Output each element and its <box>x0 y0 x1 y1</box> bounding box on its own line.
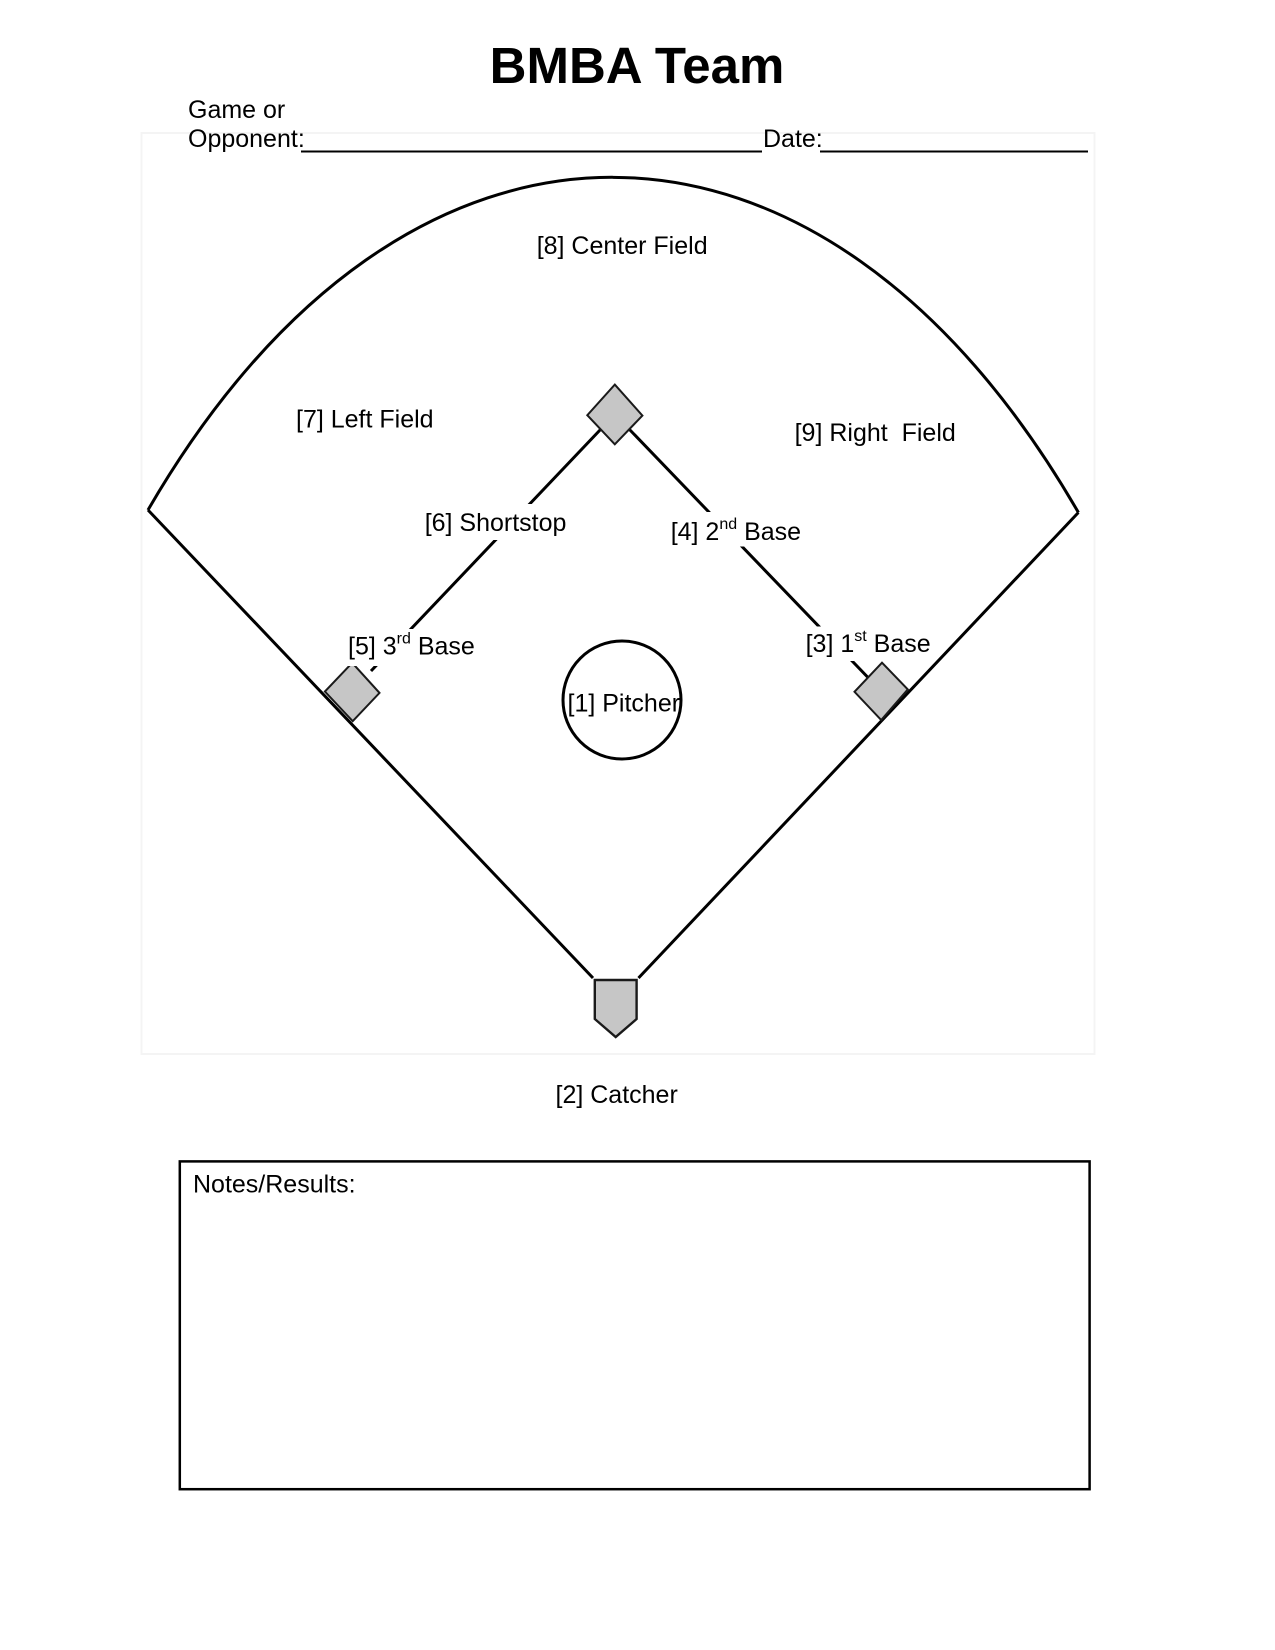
svg-text:Game or: Game or <box>188 96 285 124</box>
svg-text:[8] Center Field: [8] Center Field <box>537 232 708 260</box>
svg-text:[3] 1st Base: [3] 1st Base <box>806 628 931 658</box>
svg-text:[9] Right Field: [9] Right Field <box>795 419 956 447</box>
svg-text:Notes/Results:: Notes/Results: <box>193 1171 356 1199</box>
svg-text:BMBA Team: BMBA Team <box>490 37 785 94</box>
svg-text:Opponent:: Opponent: <box>188 125 305 153</box>
svg-text:[5] 3rd Base: [5] 3rd Base <box>348 631 475 661</box>
svg-text:[6] Shortstop: [6] Shortstop <box>425 509 567 537</box>
svg-text:[2] Catcher: [2] Catcher <box>556 1081 678 1109</box>
svg-text:Date:: Date: <box>763 125 823 153</box>
svg-text:[1] Pitcher: [1] Pitcher <box>568 690 681 718</box>
svg-text:[7] Left Field: [7] Left Field <box>296 406 434 434</box>
